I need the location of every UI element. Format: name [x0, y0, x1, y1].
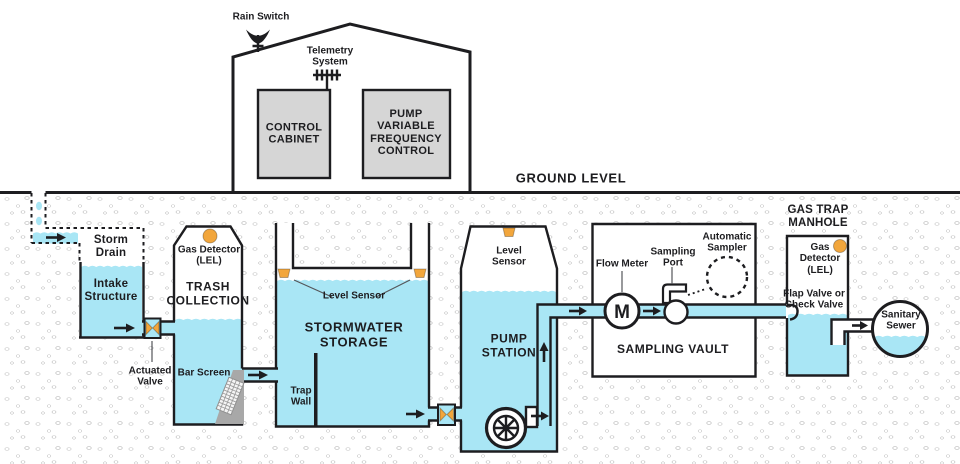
automatic-sampler-label: Automatic Sampler: [703, 232, 752, 255]
valve-icon: [438, 405, 455, 426]
bar-screen-label: Bar Screen: [178, 367, 231, 378]
actuated-valve-icon: [145, 319, 161, 339]
sampling-vault-label: SAMPLING VAULT: [617, 343, 729, 357]
flow-meter-icon: M: [605, 294, 639, 328]
rain-switch-label: Rain Switch: [233, 11, 290, 22]
flow-meter-symbol: M: [614, 302, 630, 323]
level-sensor-label: Level Sensor: [492, 246, 526, 269]
stormwater-storage-label: STORMWATER STORAGE: [305, 320, 404, 349]
level-sensor-icon: [278, 269, 290, 278]
flow-meter-label: Flow Meter: [596, 258, 648, 269]
gas-detector-lel-label: Gas Detector (LEL): [178, 245, 240, 268]
stormwater-system-diagram: M: [0, 0, 960, 464]
sanitary-sewer-label: Sanitary Sewer: [881, 310, 920, 333]
gas-detector-icon: [203, 229, 217, 243]
ground-level-label: GROUND LEVEL: [516, 172, 626, 187]
level-sensor-icon: [503, 228, 515, 237]
diagram-canvas: M: [0, 0, 960, 464]
control-cabinet-label: CONTROL CABINET: [266, 122, 322, 147]
level-sensor-icon: [414, 269, 426, 278]
actuated-valve-label: Actuated Valve: [129, 366, 172, 389]
gas-trap-manhole-label: GAS TRAP MANHOLE: [787, 204, 848, 230]
pump-vfc-label: PUMP VARIABLE FREQUENCY CONTROL: [370, 108, 442, 158]
intake-structure-label: Intake Structure: [85, 278, 138, 304]
storm-drain-label: Storm Drain: [94, 234, 128, 260]
sampling-port-icon: [663, 285, 688, 324]
gas-detector-lel-label: Gas Detector (LEL): [800, 242, 841, 276]
rain-drop-icon: [36, 202, 42, 210]
rain-drop-icon: [36, 217, 42, 225]
trap-wall-label: Trap Wall: [290, 386, 311, 409]
trap-wall-icon: [314, 353, 318, 427]
sampling-port-label: Sampling Port: [650, 247, 695, 270]
trash-collection-label: TRASH COLLECTION: [167, 280, 250, 307]
telemetry-system-label: Telemetry System: [307, 46, 354, 69]
flap-check-valve-label: Flap Valve or Check Valve: [783, 289, 845, 312]
level-sensor-label: Level Sensor: [323, 290, 385, 301]
pump-station-label: PUMP STATION: [482, 332, 536, 359]
